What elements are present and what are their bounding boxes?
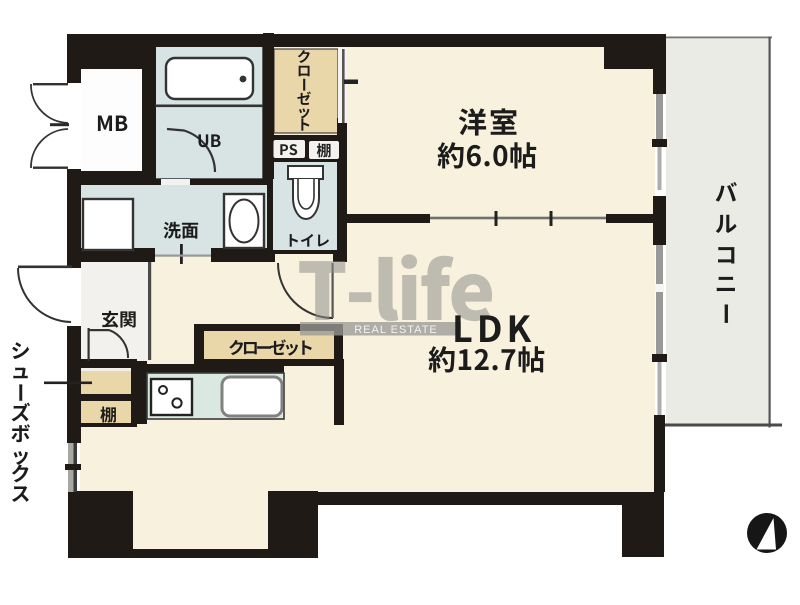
svg-text:REAL ESTATE: REAL ESTATE (354, 324, 438, 336)
